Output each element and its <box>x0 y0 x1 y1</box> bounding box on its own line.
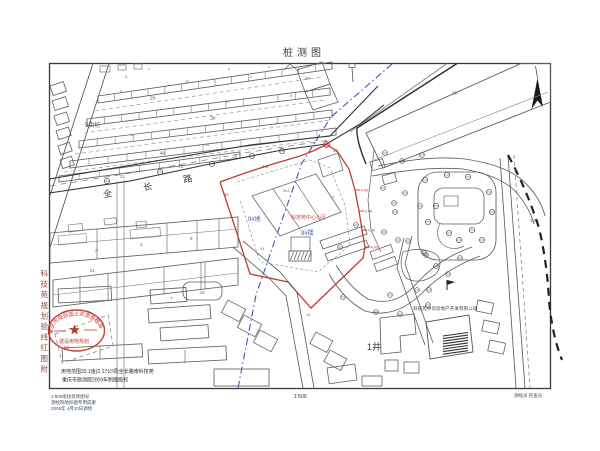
svg-text:4,: 4, <box>125 74 128 79</box>
svg-text:15: 15 <box>232 154 238 159</box>
svg-text:4.00: 4.00 <box>361 188 370 193</box>
svg-text:划: 划 <box>41 310 49 320</box>
svg-text:2#: 2# <box>150 96 156 102</box>
svg-text:21: 21 <box>90 268 96 273</box>
svg-text:44: 44 <box>260 246 265 251</box>
svg-text:4#: 4# <box>160 151 166 157</box>
svg-text:73: 73 <box>178 164 184 169</box>
svg-text:25: 25 <box>185 79 190 84</box>
svg-text:1:500街坊现状图号: 1:500街坊现状图号 <box>51 393 90 400</box>
svg-text:3s4: 3s4 <box>283 188 290 193</box>
svg-text:9#地: 9#地 <box>248 215 261 223</box>
svg-text:21: 21 <box>120 174 126 179</box>
svg-text:科技苑中心小区: 科技苑中心小区 <box>291 214 326 221</box>
svg-text:2x: 2x <box>225 99 229 104</box>
svg-text:重庆市勘测院2009年制图版权: 重庆市勘测院2009年制图版权 <box>62 377 128 384</box>
svg-text:9#楼: 9#楼 <box>301 229 314 237</box>
svg-text:验: 验 <box>41 321 49 331</box>
svg-text:线: 线 <box>41 332 49 342</box>
svg-text:4.5: 4.5 <box>530 218 537 223</box>
svg-text:红: 红 <box>41 342 49 352</box>
svg-text:4x: 4x <box>130 132 134 137</box>
svg-text:科技苑中华房地产开发有限公司: 科技苑中华房地产开发有限公司 <box>413 305 478 312</box>
svg-text:技: 技 <box>41 279 49 289</box>
svg-text:建设用地规划: 建设用地规划 <box>59 338 89 345</box>
svg-text:测绘员 检查员: 测绘员 检查员 <box>514 392 543 399</box>
svg-text:x: x <box>268 64 270 69</box>
svg-text:x: x <box>250 74 252 79</box>
svg-text:苑: 苑 <box>41 289 49 299</box>
svg-text:4#: 4# <box>305 76 311 81</box>
svg-text:y: y <box>228 66 230 71</box>
svg-text:全: 全 <box>102 187 113 199</box>
svg-text:桩测图: 桩测图 <box>283 46 325 59</box>
svg-text:测绘院地形图专用成果: 测绘院地形图专用成果 <box>51 399 96 406</box>
svg-text:(2): (2) <box>64 345 70 350</box>
svg-text:x2: x2 <box>200 290 205 295</box>
svg-text:长: 长 <box>142 180 153 192</box>
svg-text:40: 40 <box>333 148 338 153</box>
svg-text:1:500: 1:500 <box>294 394 307 400</box>
svg-text:5街坊: 5街坊 <box>85 121 100 129</box>
svg-text:4#: 4# <box>452 91 458 97</box>
svg-text:3#: 3# <box>210 116 216 122</box>
svg-text:18: 18 <box>224 192 229 197</box>
svg-text:科: 科 <box>41 268 49 278</box>
svg-text:附: 附 <box>41 364 49 373</box>
svg-text:4,: 4, <box>120 88 123 93</box>
svg-text:用地范围33.1亩(2.17公顷)全长路南科技苑: 用地范围33.1亩(2.17公顷)全长路南科技苑 <box>61 368 154 375</box>
svg-text:x: x <box>148 66 150 71</box>
svg-text:44: 44 <box>205 142 210 147</box>
svg-text:规: 规 <box>41 300 49 310</box>
svg-text:14: 14 <box>306 312 311 317</box>
svg-text:2': 2' <box>95 248 99 253</box>
svg-text:2009年 4月10日调绘: 2009年 4月10日调绘 <box>51 405 93 412</box>
svg-text:图: 图 <box>41 354 49 363</box>
svg-text:路: 路 <box>182 172 193 184</box>
svg-text:1井: 1井 <box>367 341 381 352</box>
